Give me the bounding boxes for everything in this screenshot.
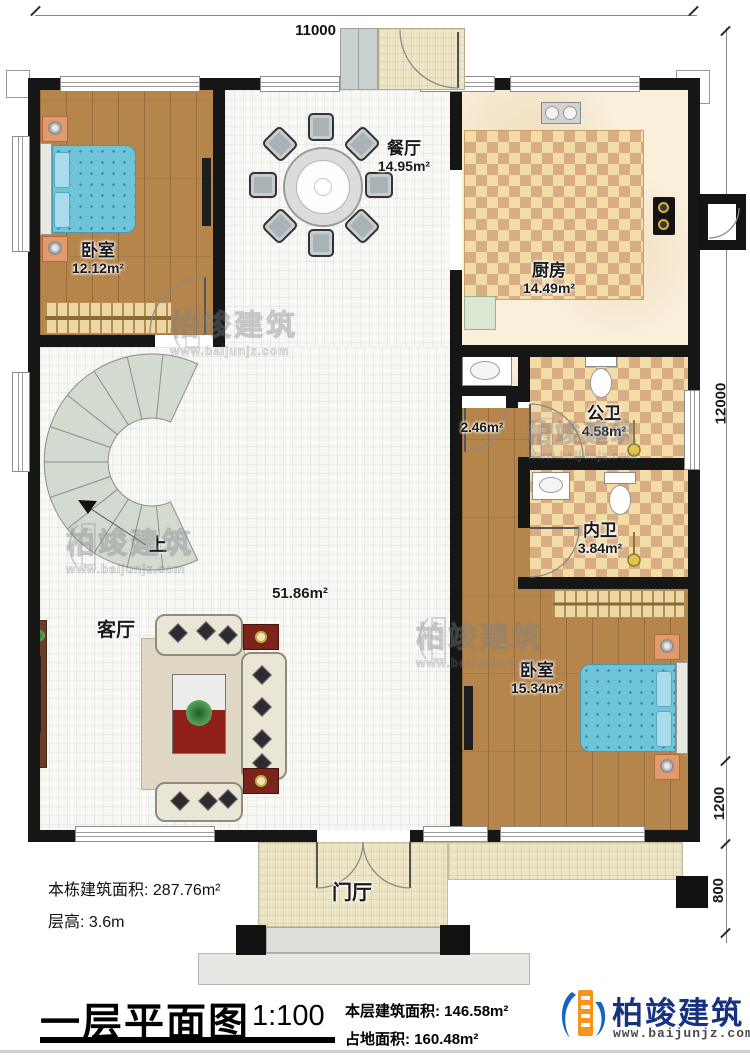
- floor-area-label: 本层建筑面积: 146.58m²: [345, 1000, 508, 1021]
- brand-website: www.baijunjz.com: [613, 1026, 750, 1041]
- room-label-ensuite-bath: 内卫 3.84m²: [578, 522, 622, 556]
- land-area-label: 占地面积: 160.48m²: [345, 1028, 478, 1049]
- title-underline: [40, 1037, 335, 1043]
- note-building-area: 本栋建筑面积: 287.76m²: [48, 876, 221, 900]
- door-swings: [150, 30, 739, 888]
- room-label-bedroom-left: 卧室 12.12m²: [72, 242, 124, 276]
- footer-divider: [0, 1050, 750, 1053]
- watermark-logo-icon: [416, 614, 450, 664]
- hallway-area-label: 2.46m²: [461, 420, 504, 436]
- watermark: 柏竣建筑 www.baijunjz.com: [66, 520, 194, 576]
- watermark-logo-icon: [66, 520, 100, 570]
- note-floor-height: 层高: 3.6m: [48, 908, 124, 932]
- watermark: 柏竣建筑 www.baijunjz.com: [170, 302, 298, 358]
- watermark-logo-icon: [170, 302, 204, 352]
- room-label-foyer: 门厅: [332, 884, 372, 902]
- room-label-dining: 餐厅 14.95m²: [378, 140, 430, 174]
- scale-label: 1:100: [252, 1000, 325, 1033]
- floor-plan-canvas: 11000 12000 1200 800: [0, 0, 750, 1058]
- watermark: 柏竣建筑 www.baijunjz.com: [416, 614, 544, 670]
- room-label-kitchen: 厨房 14.49m²: [523, 262, 575, 296]
- brand-logo-icon: [556, 986, 606, 1044]
- watermark-logo-icon: [527, 414, 557, 460]
- brand-logo: [556, 986, 606, 1044]
- living-area-label: 51.86m²: [272, 586, 328, 602]
- room-label-living: 客厅: [97, 622, 135, 640]
- watermark: 柏竣建筑 www.baijunjz.com: [527, 414, 639, 462]
